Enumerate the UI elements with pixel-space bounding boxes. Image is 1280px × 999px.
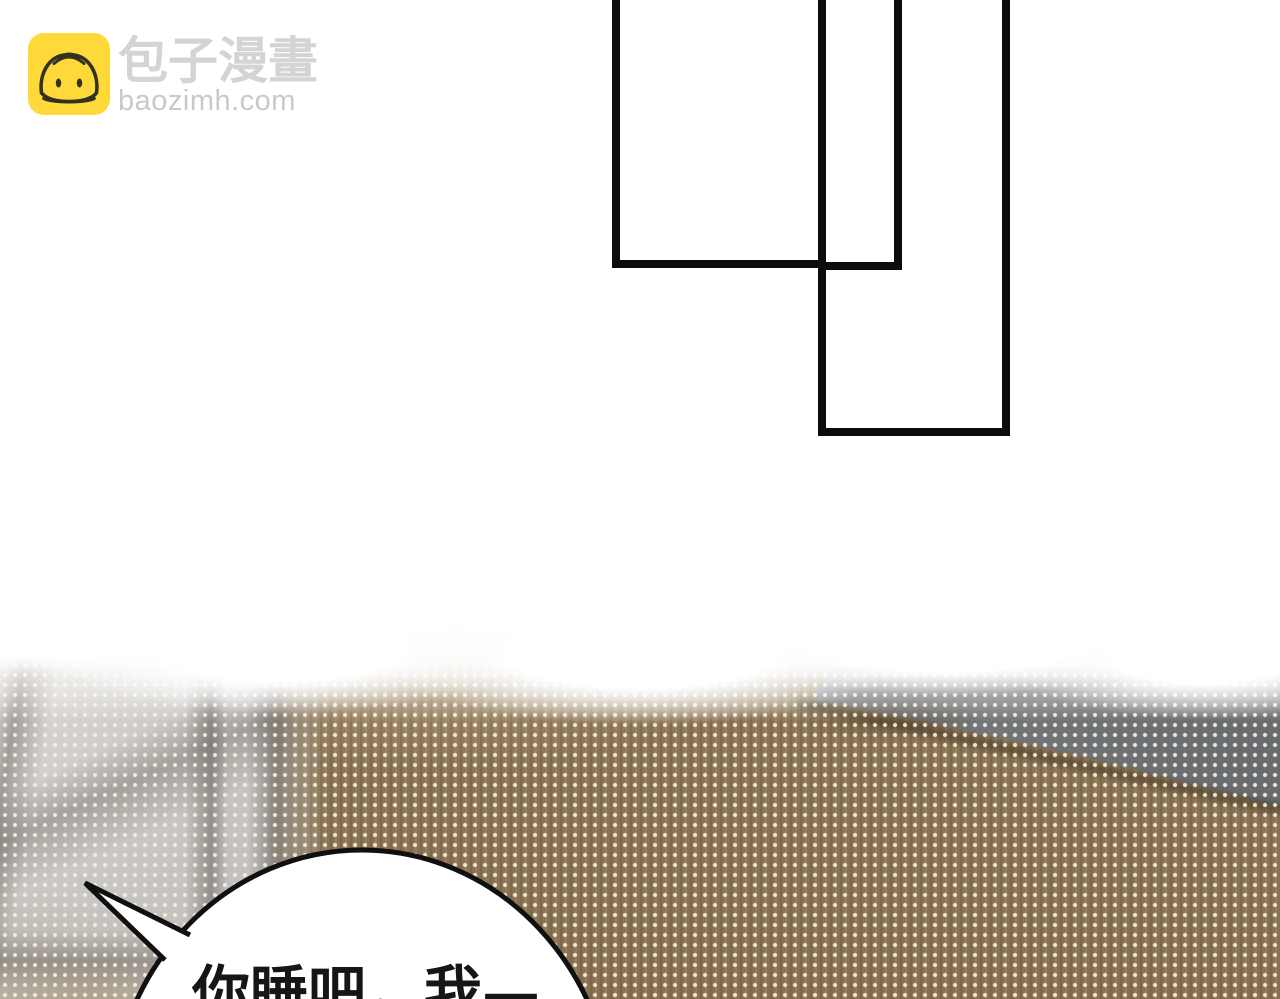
site-domain-text: baozimh.com (118, 87, 318, 116)
panel-border-left (612, 0, 826, 268)
watermark-text: 包子漫畫 baozimh.com (118, 33, 318, 116)
baozi-logo-icon (28, 33, 110, 115)
speech-bubble-text: 你睡吧，我— (192, 964, 540, 999)
panel-border-right (818, 0, 1010, 436)
site-watermark: 包子漫畫 baozimh.com (28, 33, 318, 116)
speech-bubble-tail (85, 883, 190, 960)
comic-page[interactable]: 包子漫畫 baozimh.com 你睡吧，我— (0, 0, 1280, 999)
bed-scene: 你睡吧，我— (0, 620, 1280, 999)
baozi-bun-face-icon (28, 33, 110, 115)
site-name-text: 包子漫畫 (118, 36, 318, 86)
speech-bubble (0, 620, 1280, 999)
